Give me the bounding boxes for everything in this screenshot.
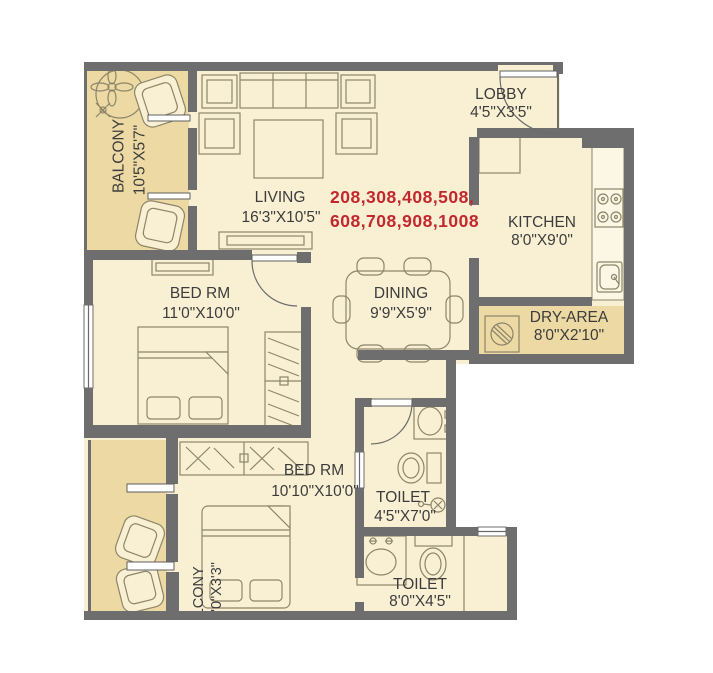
floor-plan-page: BALCONY 10'5"X5'7" LIVING 16'3"X10'5" 20… bbox=[0, 0, 713, 673]
room-bedroom-2-dims: 10'10"X10'0" bbox=[271, 483, 359, 500]
room-living-label: LIVING bbox=[255, 189, 306, 206]
balcony-chair bbox=[134, 199, 187, 253]
window bbox=[478, 527, 506, 536]
balcony-door-sill bbox=[127, 562, 174, 570]
unit-numbers-line1: 208,308,408,508, bbox=[330, 187, 474, 207]
room-balcony-2-label: BALCONY bbox=[191, 566, 207, 636]
room-toilet-1-label: TOILET bbox=[376, 489, 431, 506]
room-toilet-1-dims: 4'5"X7'0" bbox=[374, 508, 436, 525]
room-bedroom-1-label: BED RM bbox=[170, 285, 230, 302]
room-lobby-label: LOBBY bbox=[475, 86, 527, 103]
balcony-door-sill bbox=[148, 193, 190, 199]
room-toilet-2-label: TOILET bbox=[393, 576, 448, 593]
room-kitchen-label: KITCHEN bbox=[508, 214, 576, 231]
room-living-dims: 16'3"X10'5" bbox=[242, 209, 321, 226]
room-balcony-1-label: BALCONY bbox=[110, 119, 127, 193]
unit-numbers-line2: 608,708,908,1008 bbox=[330, 211, 479, 231]
balcony-door-sill bbox=[127, 484, 174, 492]
room-dining-dims: 9'9"X5'9" bbox=[370, 305, 432, 322]
balcony-door-sill bbox=[148, 115, 190, 121]
floor-plan-drawing: BALCONY 10'5"X5'7" LIVING 16'3"X10'5" 20… bbox=[0, 0, 713, 673]
room-dry-area-dims: 8'0"X2'10" bbox=[534, 327, 604, 344]
room-lobby-dims: 4'5"X3'5" bbox=[470, 104, 532, 121]
room-toilet-2-dims: 8'0"X4'5" bbox=[389, 593, 451, 610]
room-kitchen-dims: 8'0"X9'0" bbox=[511, 232, 573, 249]
room-bedroom-2-label: BED RM bbox=[284, 462, 344, 479]
room-dry-area-label: DRY-AREA bbox=[530, 309, 609, 326]
room-dining-label: DINING bbox=[374, 285, 428, 302]
room-bedroom-1-dims: 11'0"X10'0" bbox=[162, 305, 240, 322]
window bbox=[84, 305, 93, 388]
room-balcony-1-dims: 10'5"X5'7" bbox=[131, 125, 148, 195]
